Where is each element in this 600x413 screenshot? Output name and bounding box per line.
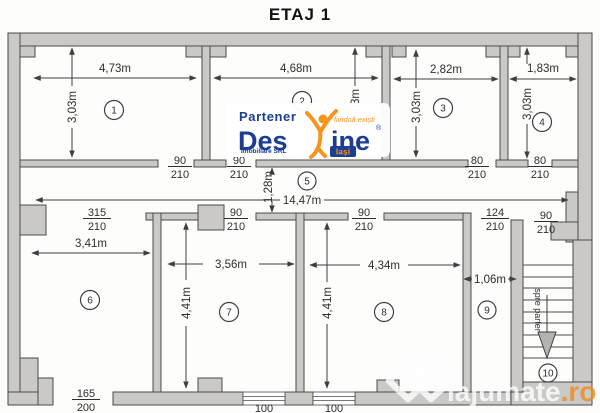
opening-width: 315 — [88, 207, 106, 219]
wall-corridor-top — [194, 160, 226, 167]
logo-city: Iași — [336, 147, 350, 157]
door-room9-size: 124 210 — [481, 207, 509, 233]
door-room1-size: 90 210 — [168, 155, 192, 181]
door-height: 210 — [468, 169, 486, 181]
door-width: 90 — [174, 155, 186, 167]
agency-logo-watermark: Partener Des ine ® fiindcă exiști Imobil… — [226, 103, 390, 157]
pier — [508, 46, 520, 57]
dims-room9: 1,06m 9 — [464, 274, 516, 319]
room4-height: 3,03m — [522, 88, 534, 120]
wall-room7-room8 — [296, 213, 304, 392]
pier — [186, 46, 202, 57]
room8-width: 4,34m — [368, 260, 400, 272]
wall-left-step — [20, 358, 38, 392]
logo-tagline: fiindcă exiști — [334, 115, 375, 124]
door-height: 210 — [355, 221, 373, 233]
wall-outer-left — [8, 33, 20, 405]
site-watermark-text: lajumate.ro — [447, 376, 596, 407]
wall-corridor-top — [552, 160, 578, 167]
door-width: 90 — [230, 207, 242, 219]
site-watermark-tld: .ro — [561, 376, 597, 407]
wall-stair-right — [573, 240, 592, 392]
door-width: 90 — [358, 207, 370, 219]
wall-corridor-top — [256, 160, 468, 167]
room1-number: 1 — [111, 106, 117, 117]
window-piers — [20, 46, 578, 57]
room8-height: 4,41m — [322, 287, 334, 319]
dims-room1: 4,73m 3,03m 1 — [34, 48, 196, 157]
door-room2-size: 90 210 — [227, 155, 251, 181]
logo-partener-text: Partener — [239, 109, 297, 124]
dims-room7: 3,56m 4,41m 7 — [168, 223, 294, 388]
door-height: 210 — [537, 224, 555, 236]
corridor-width: 1,28m — [263, 171, 275, 203]
floor-plan-drawing: ETAJ 1 — [0, 0, 600, 413]
room3-height: 3,03m — [411, 91, 423, 123]
pier — [566, 46, 578, 57]
room9-width: 1,06m — [474, 274, 506, 286]
door-width: 80 — [471, 155, 483, 167]
room1-height: 3,03m — [67, 91, 79, 123]
wall-left-block — [20, 205, 46, 235]
room7-height: 4,41m — [181, 287, 193, 319]
dims-room3: 2,82m 3,03m 3 — [394, 50, 498, 157]
pier — [366, 46, 382, 57]
door-height: 210 — [531, 169, 549, 181]
door-height: 210 — [230, 169, 248, 181]
wall-stair-left — [511, 220, 523, 392]
door-width: 90 — [540, 210, 552, 222]
floor-plan-page: ETAJ 1 — [0, 0, 600, 413]
opening-height: 210 — [88, 221, 106, 233]
door-width: 80 — [534, 155, 546, 167]
wall-room3-room4 — [500, 46, 508, 167]
pier — [486, 46, 500, 57]
room3-number: 3 — [440, 104, 446, 115]
wall-outer-bottom — [113, 392, 243, 405]
room2-width: 4,68m — [280, 63, 312, 75]
room4-number: 4 — [539, 118, 545, 129]
pier — [20, 46, 35, 57]
logo-subtitle: Imobiliare SRL — [241, 148, 287, 155]
chimney-room7 — [198, 378, 222, 392]
stairs-note: spre parter — [533, 288, 543, 332]
room4-width: 1,83m — [527, 63, 559, 75]
door-room7-size: 90 210 — [224, 207, 248, 233]
wall-corridor-top — [496, 160, 528, 167]
pier — [210, 46, 226, 57]
wall-room1-room2 — [202, 46, 210, 167]
door-width: 124 — [486, 207, 504, 219]
dims-room6: 3,41m 6 — [32, 238, 150, 310]
hall-opening-size: 315 210 — [83, 207, 111, 233]
room8-number: 8 — [381, 308, 387, 319]
window-height: 200 — [77, 402, 95, 413]
door-height: 210 — [486, 221, 504, 233]
stair-direction-arrow — [538, 332, 556, 358]
room6-number: 6 — [87, 296, 93, 307]
door-room8-size: 90 210 — [352, 207, 376, 233]
room5-number: 5 — [304, 177, 310, 188]
window-width: 165 — [77, 388, 95, 400]
wall-corridor-bottom — [384, 213, 471, 220]
corridor-length: 14,47m — [283, 195, 321, 207]
door-room3-size: 80 210 — [465, 155, 489, 181]
wall-room8-room9 — [463, 213, 471, 392]
room9-number: 9 — [484, 306, 490, 317]
page-title: ETAJ 1 — [269, 5, 331, 24]
dims-corridor: 14,47m 1,28m 5 — [36, 168, 568, 212]
window-room6-size: 165 200 — [72, 388, 100, 413]
room3-width: 2,82m — [430, 64, 462, 76]
door-height: 210 — [227, 221, 245, 233]
room6-width: 3,41m — [75, 238, 107, 250]
wall-left-step — [38, 378, 53, 405]
room7-number: 7 — [226, 308, 232, 319]
wall-outer-bottom — [285, 392, 313, 405]
dims-room8: 4,34m 4,41m 8 — [310, 223, 460, 388]
site-watermark-name: lajumate — [447, 376, 561, 407]
wall-room6-room7 — [153, 213, 161, 392]
window-room7-size: 100 — [255, 403, 273, 413]
door-height: 210 — [171, 169, 189, 181]
room7-width: 3,56m — [215, 259, 247, 271]
logo-registered-mark: ® — [376, 124, 382, 132]
door-room4-size: 80 210 — [528, 155, 552, 181]
logo-person-head — [319, 115, 328, 124]
pillar-room7 — [198, 205, 224, 230]
pier — [392, 46, 406, 57]
staircase: spre parter — [523, 265, 573, 358]
wall-outer-top — [8, 33, 592, 46]
room1-width: 4,73m — [99, 63, 131, 75]
wall-corridor-top — [20, 160, 158, 167]
window-room8-size: 100 — [325, 403, 343, 413]
dims-room4: 1,83m 3,03m 4 — [510, 48, 576, 158]
